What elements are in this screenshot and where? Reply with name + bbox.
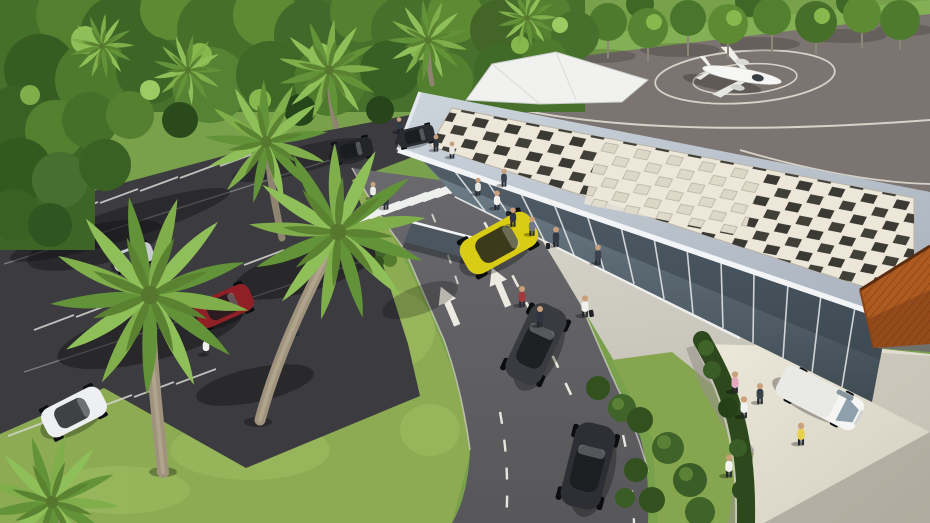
- scene-render: [0, 0, 930, 523]
- aerial-render-canvas: [0, 0, 930, 523]
